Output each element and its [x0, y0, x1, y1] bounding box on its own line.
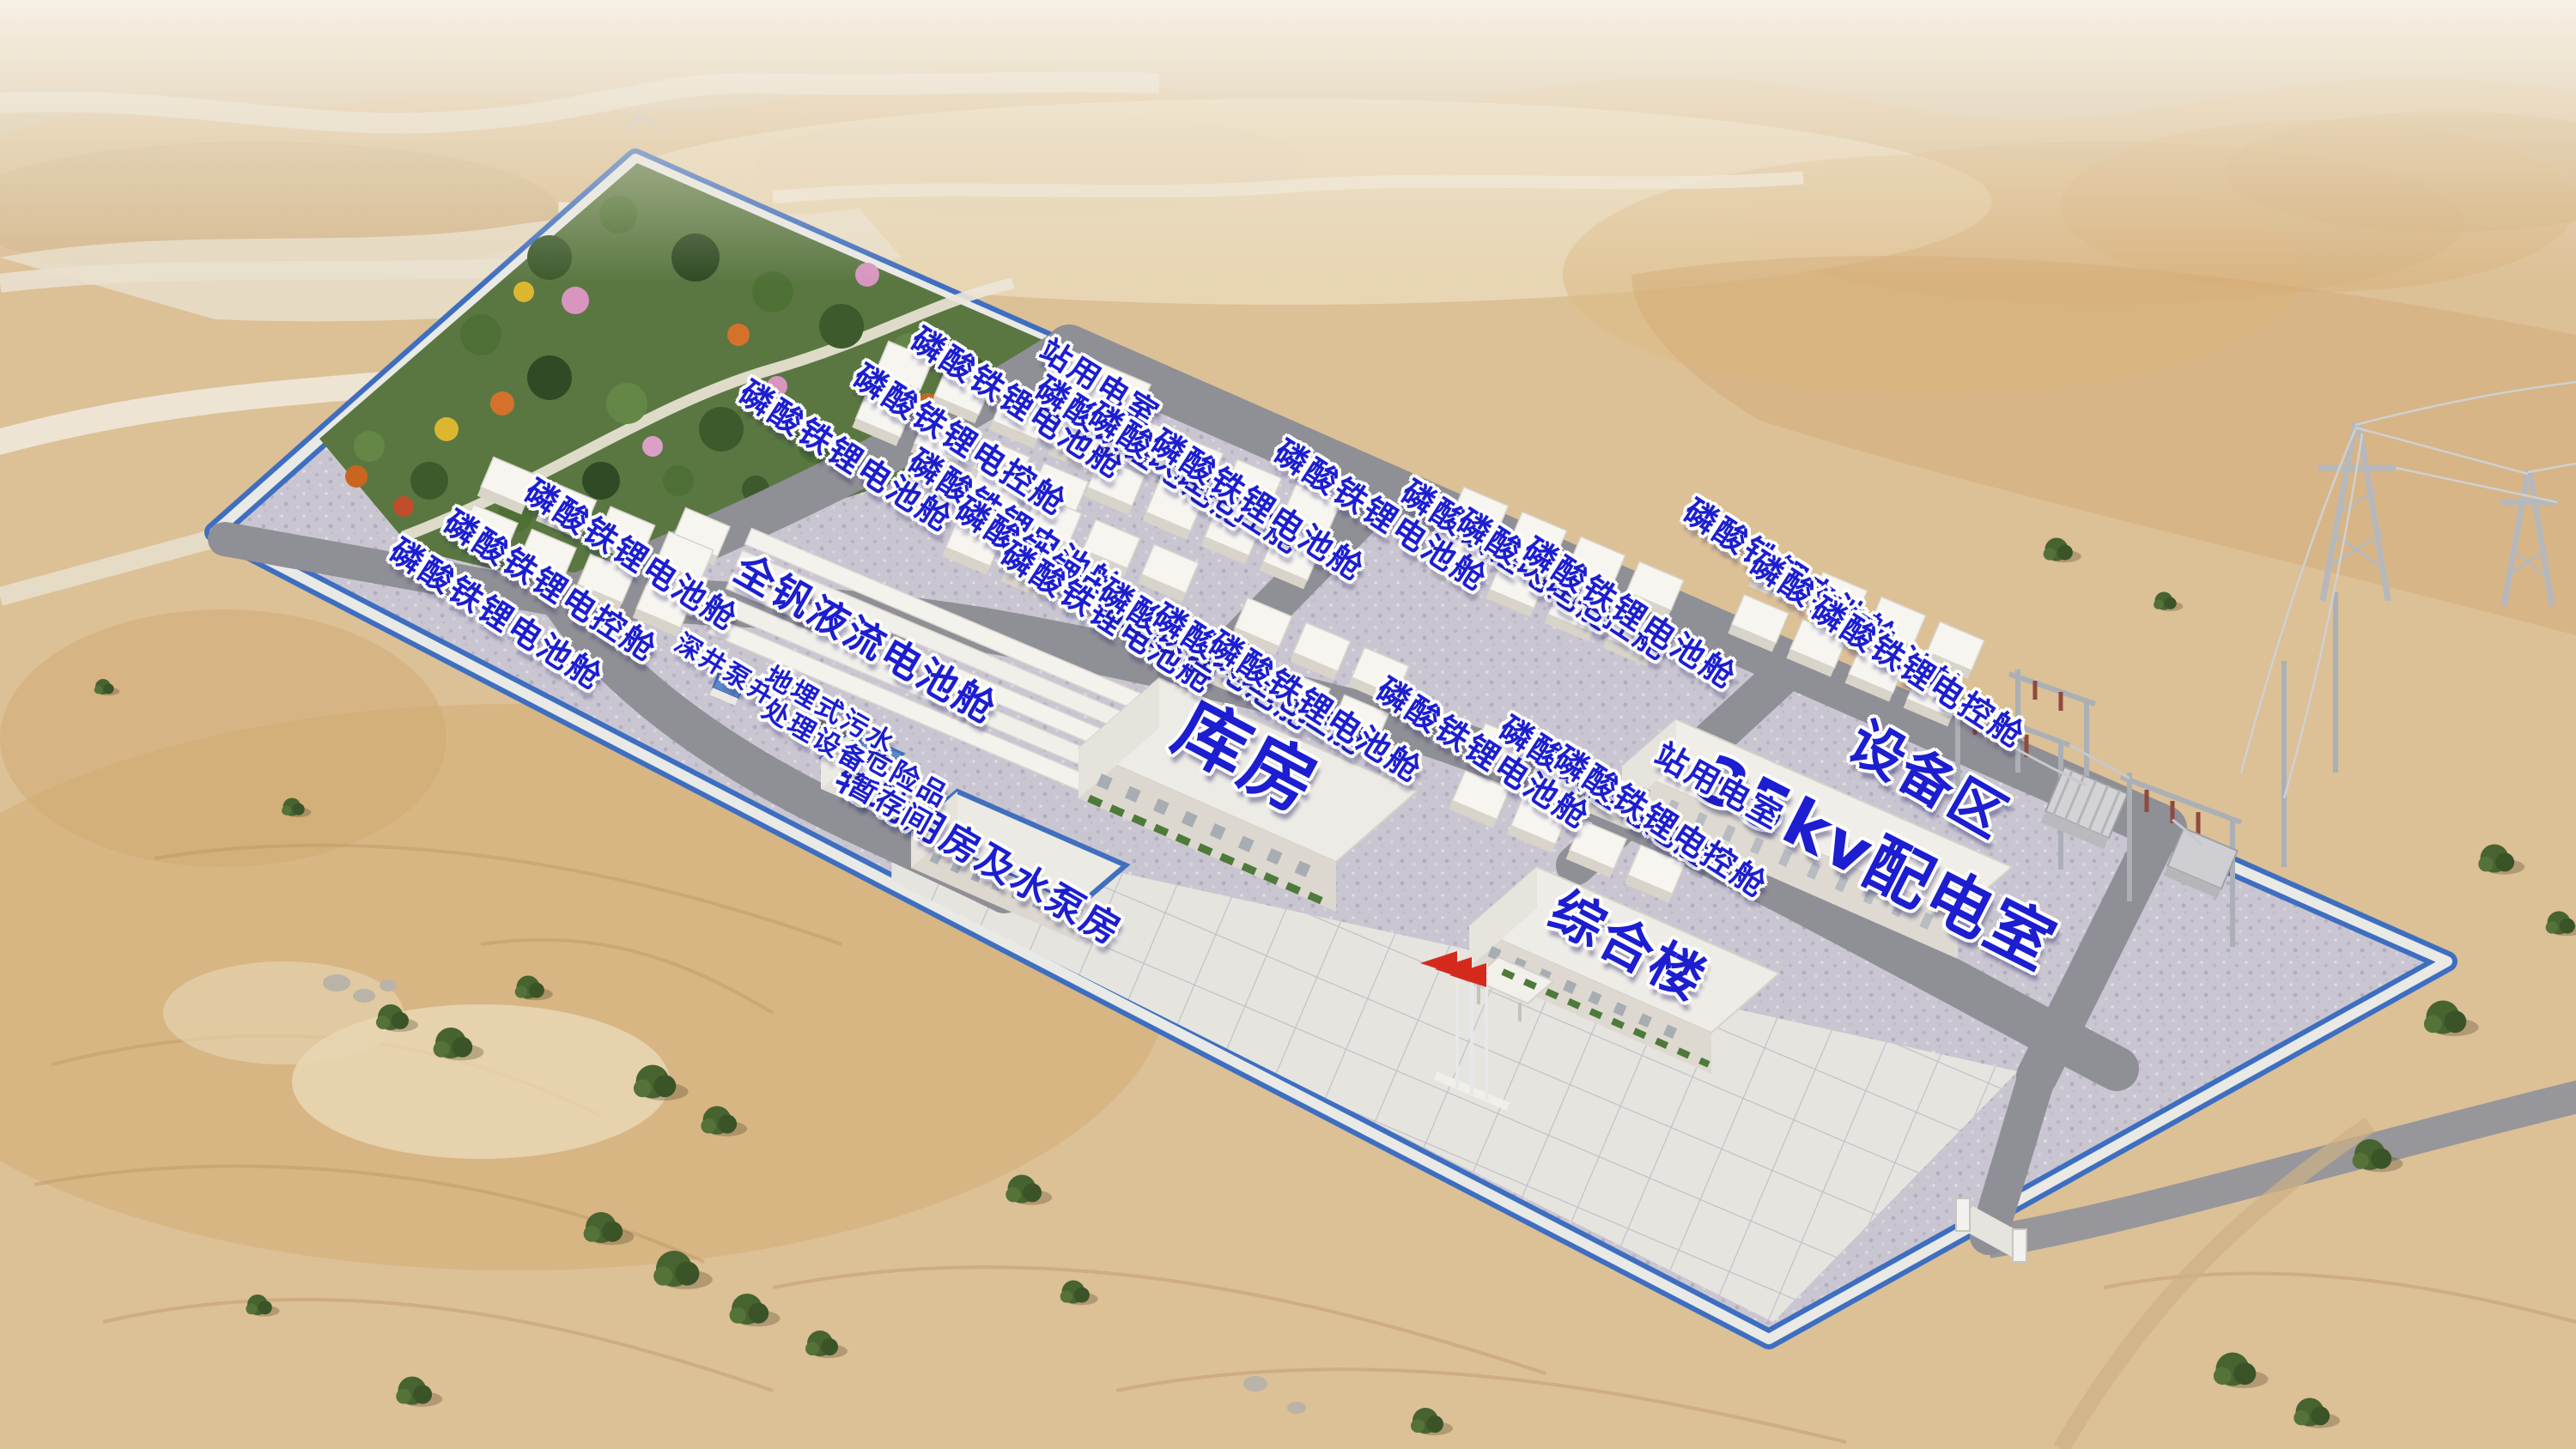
aerial-render-viewport: 库房综合楼设备区35kv配电室站用电室站用电室辅助用房及水泵房危险品 暂存间深井… — [0, 0, 2576, 1449]
haze-overlay — [0, 0, 2576, 283]
aerial-render — [0, 0, 2576, 1449]
